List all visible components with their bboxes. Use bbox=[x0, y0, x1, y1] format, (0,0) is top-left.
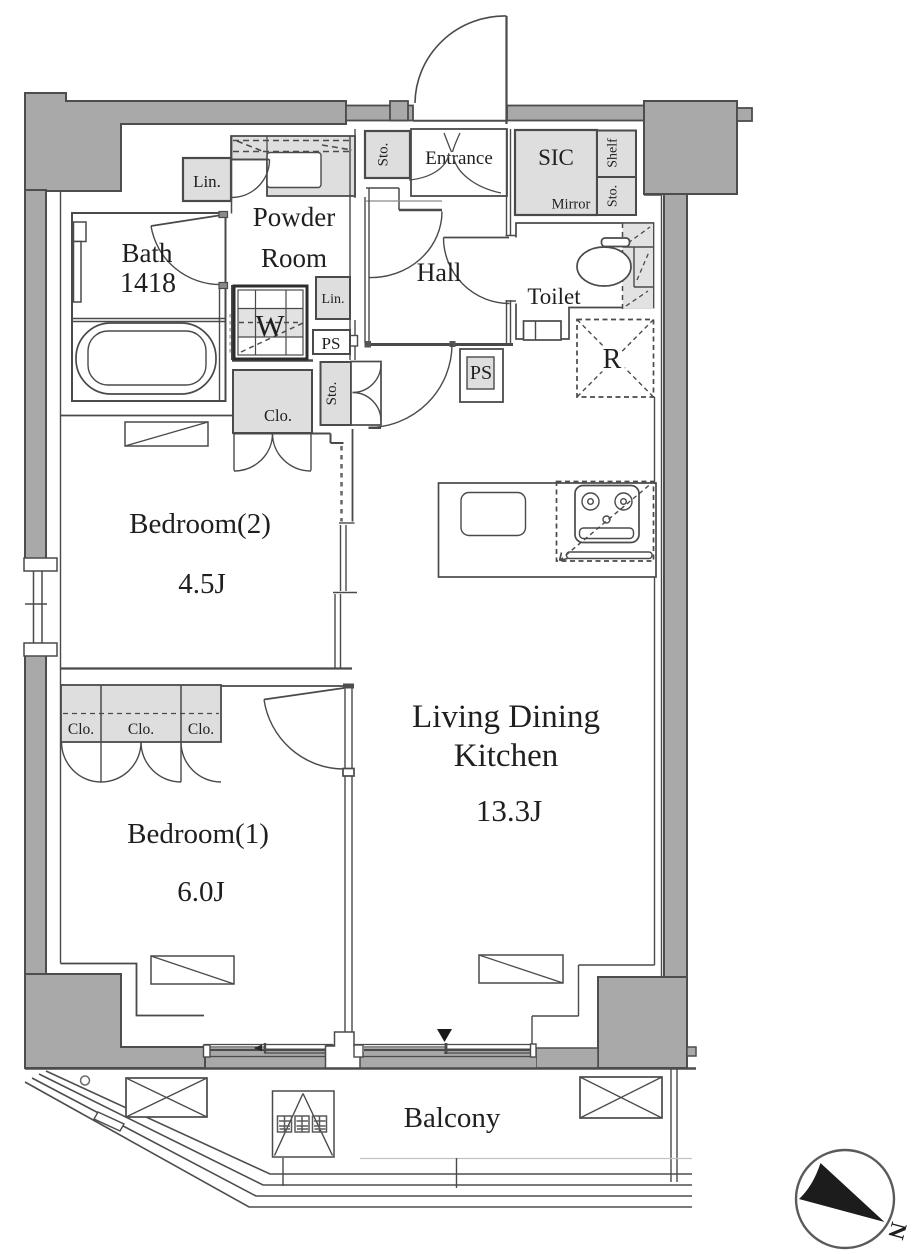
svg-text:13.3J: 13.3J bbox=[476, 793, 542, 828]
svg-text:SIC: SIC bbox=[538, 145, 574, 170]
svg-text:Sto.: Sto. bbox=[606, 185, 621, 207]
svg-text:Bedroom(2): Bedroom(2) bbox=[129, 508, 271, 540]
svg-text:Living Dining: Living Dining bbox=[412, 699, 600, 735]
svg-text:Shelf: Shelf bbox=[606, 138, 621, 168]
svg-text:Bath: Bath bbox=[122, 238, 173, 268]
svg-text:Mirror: Mirror bbox=[552, 197, 591, 213]
svg-text:W: W bbox=[255, 308, 285, 343]
svg-text:Sto.: Sto. bbox=[324, 382, 340, 406]
svg-text:R: R bbox=[603, 344, 622, 375]
svg-text:6.0J: 6.0J bbox=[177, 876, 225, 908]
svg-text:Sto.: Sto. bbox=[376, 143, 392, 167]
svg-text:Hall: Hall bbox=[417, 258, 462, 287]
svg-text:Bedroom(1): Bedroom(1) bbox=[127, 818, 269, 850]
svg-text:4.5J: 4.5J bbox=[178, 568, 226, 600]
svg-text:Toilet: Toilet bbox=[527, 284, 581, 309]
svg-text:Room: Room bbox=[261, 243, 327, 273]
svg-text:Clo.: Clo. bbox=[128, 721, 154, 738]
svg-text:Kitchen: Kitchen bbox=[454, 738, 558, 774]
svg-text:PS: PS bbox=[322, 334, 341, 353]
svg-text:Powder: Powder bbox=[253, 202, 336, 232]
svg-text:Clo.: Clo. bbox=[264, 406, 292, 425]
svg-text:Clo.: Clo. bbox=[188, 721, 214, 738]
svg-text:Lin.: Lin. bbox=[322, 292, 345, 307]
svg-text:1418: 1418 bbox=[120, 268, 176, 299]
svg-text:PS: PS bbox=[470, 362, 492, 384]
svg-text:Balcony: Balcony bbox=[404, 1102, 501, 1134]
svg-text:Clo.: Clo. bbox=[68, 721, 94, 738]
svg-text:N: N bbox=[883, 1220, 912, 1243]
svg-text:Entrance: Entrance bbox=[425, 148, 493, 169]
svg-text:Lin.: Lin. bbox=[193, 172, 221, 191]
